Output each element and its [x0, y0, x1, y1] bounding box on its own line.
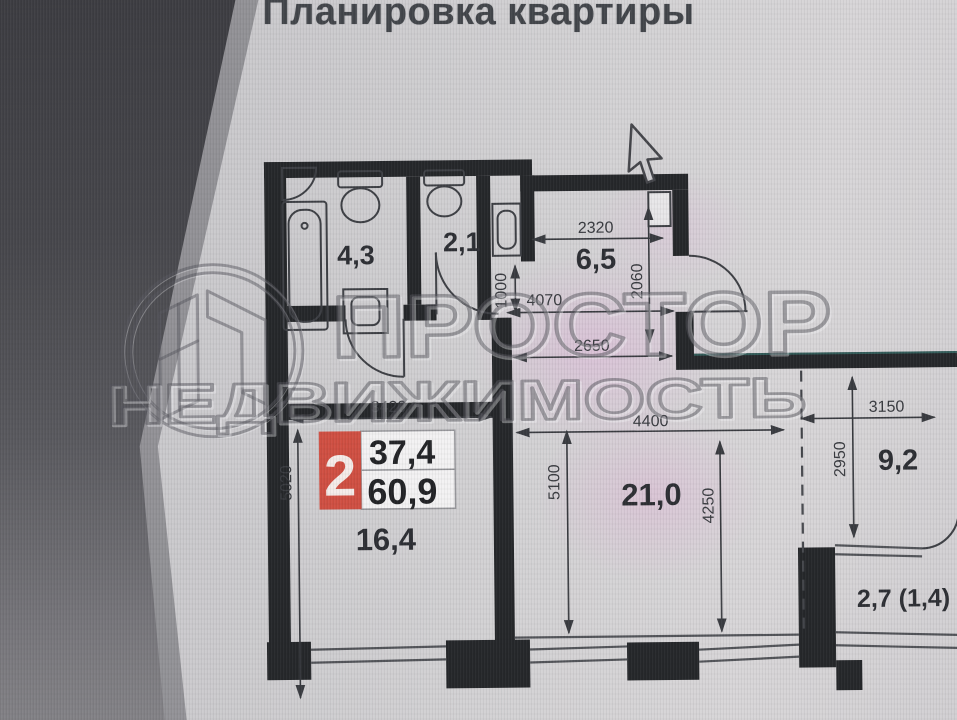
room-label-wc: 2,1: [443, 227, 481, 257]
watermark: ПРОСТОР ПРОСТОР НЕДВИЖИМОСТЬ НЕДВИЖИМОСТ…: [105, 258, 835, 439]
room-label-hall: 6,5: [576, 244, 617, 276]
dim-kitchen-width: 3150: [869, 399, 905, 416]
watermark-line1: ПРОСТОР: [331, 272, 832, 376]
watermark-line2: НЕДВИЖИМОСТЬ: [106, 366, 807, 436]
dim-kitchen-depth: 2950: [832, 441, 849, 477]
dim-hall-width: 2320: [578, 220, 614, 237]
photo-of-screen: Планировка квартиры: [0, 0, 957, 720]
floor-plan: 2320 2060 1000 4070 2650 3420 5020 4400 …: [0, 0, 957, 720]
room-count: 2: [324, 443, 357, 508]
dim-bedroom-depth: 5020: [278, 465, 295, 501]
total-area: 60,9: [367, 470, 438, 512]
room-label-bedroom: 16,4: [356, 522, 417, 558]
room-label-bathroom: 4,3: [337, 240, 375, 270]
room-label-balcony: 2,7 (1,4): [857, 584, 950, 613]
toilet-icon: [338, 171, 383, 222]
dim-living-depth-left: 5100: [546, 464, 563, 500]
room-label-living: 21,0: [621, 477, 682, 513]
apartment-badge: 2 37,4 60,9: [319, 430, 456, 512]
living-area: 37,4: [369, 433, 436, 472]
sink-icon: [492, 204, 521, 256]
dim-living-depth-right: 4250: [700, 488, 717, 524]
electrical-panel-icon: [648, 192, 670, 226]
toilet-icon: [424, 170, 464, 216]
room-label-kitchen: 9,2: [878, 444, 919, 476]
